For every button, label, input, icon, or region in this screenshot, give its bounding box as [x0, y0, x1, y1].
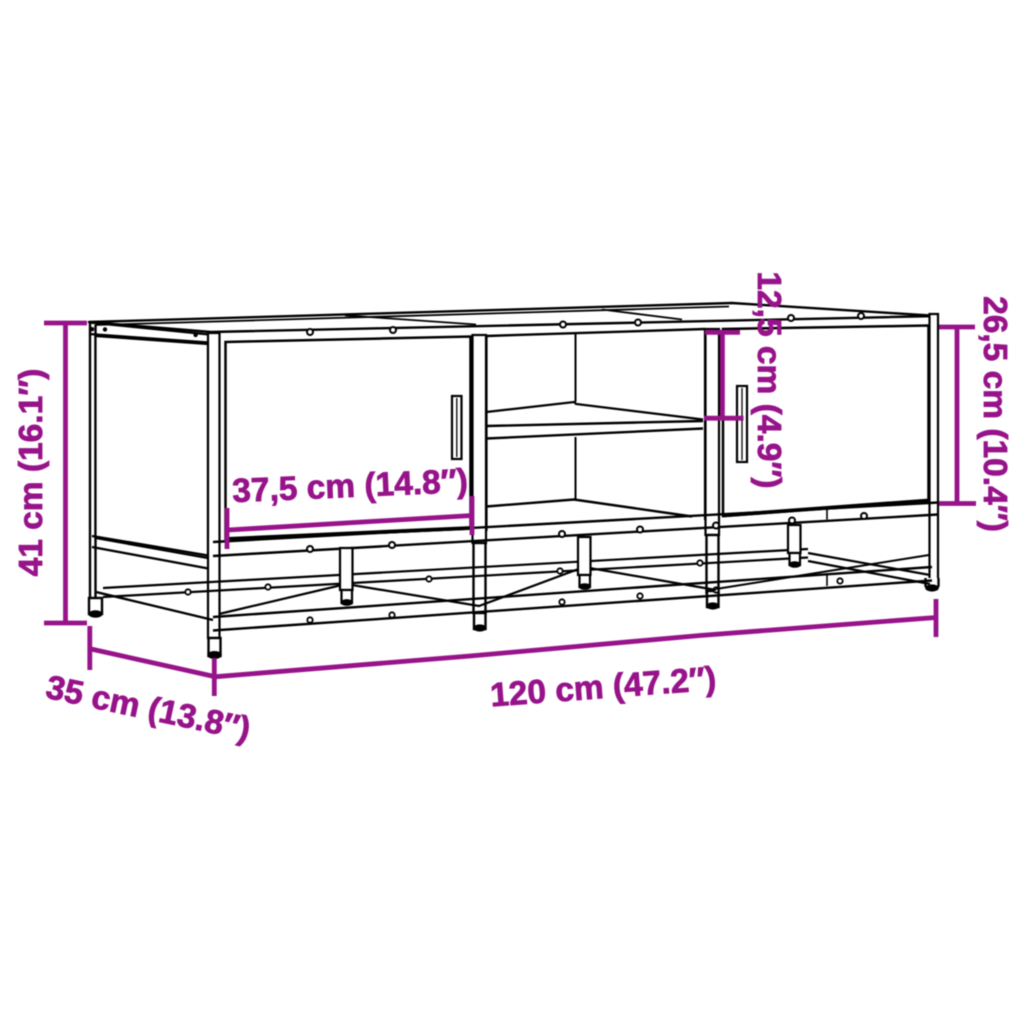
- svg-text:35 cm (13.8″): 35 cm (13.8″): [43, 669, 254, 748]
- svg-text:41 cm (16.1″): 41 cm (16.1″): [13, 369, 50, 577]
- svg-text:120 cm (47.2″): 120 cm (47.2″): [489, 661, 718, 715]
- svg-text:26,5 cm (10.4″): 26,5 cm (10.4″): [976, 296, 1013, 532]
- svg-text:12,5 cm (4.9″): 12,5 cm (4.9″): [750, 271, 787, 488]
